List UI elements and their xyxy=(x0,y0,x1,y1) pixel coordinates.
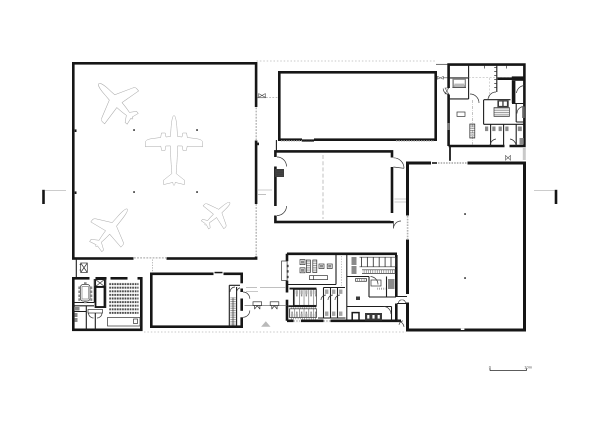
svg-text:10m: 10m xyxy=(524,364,532,369)
